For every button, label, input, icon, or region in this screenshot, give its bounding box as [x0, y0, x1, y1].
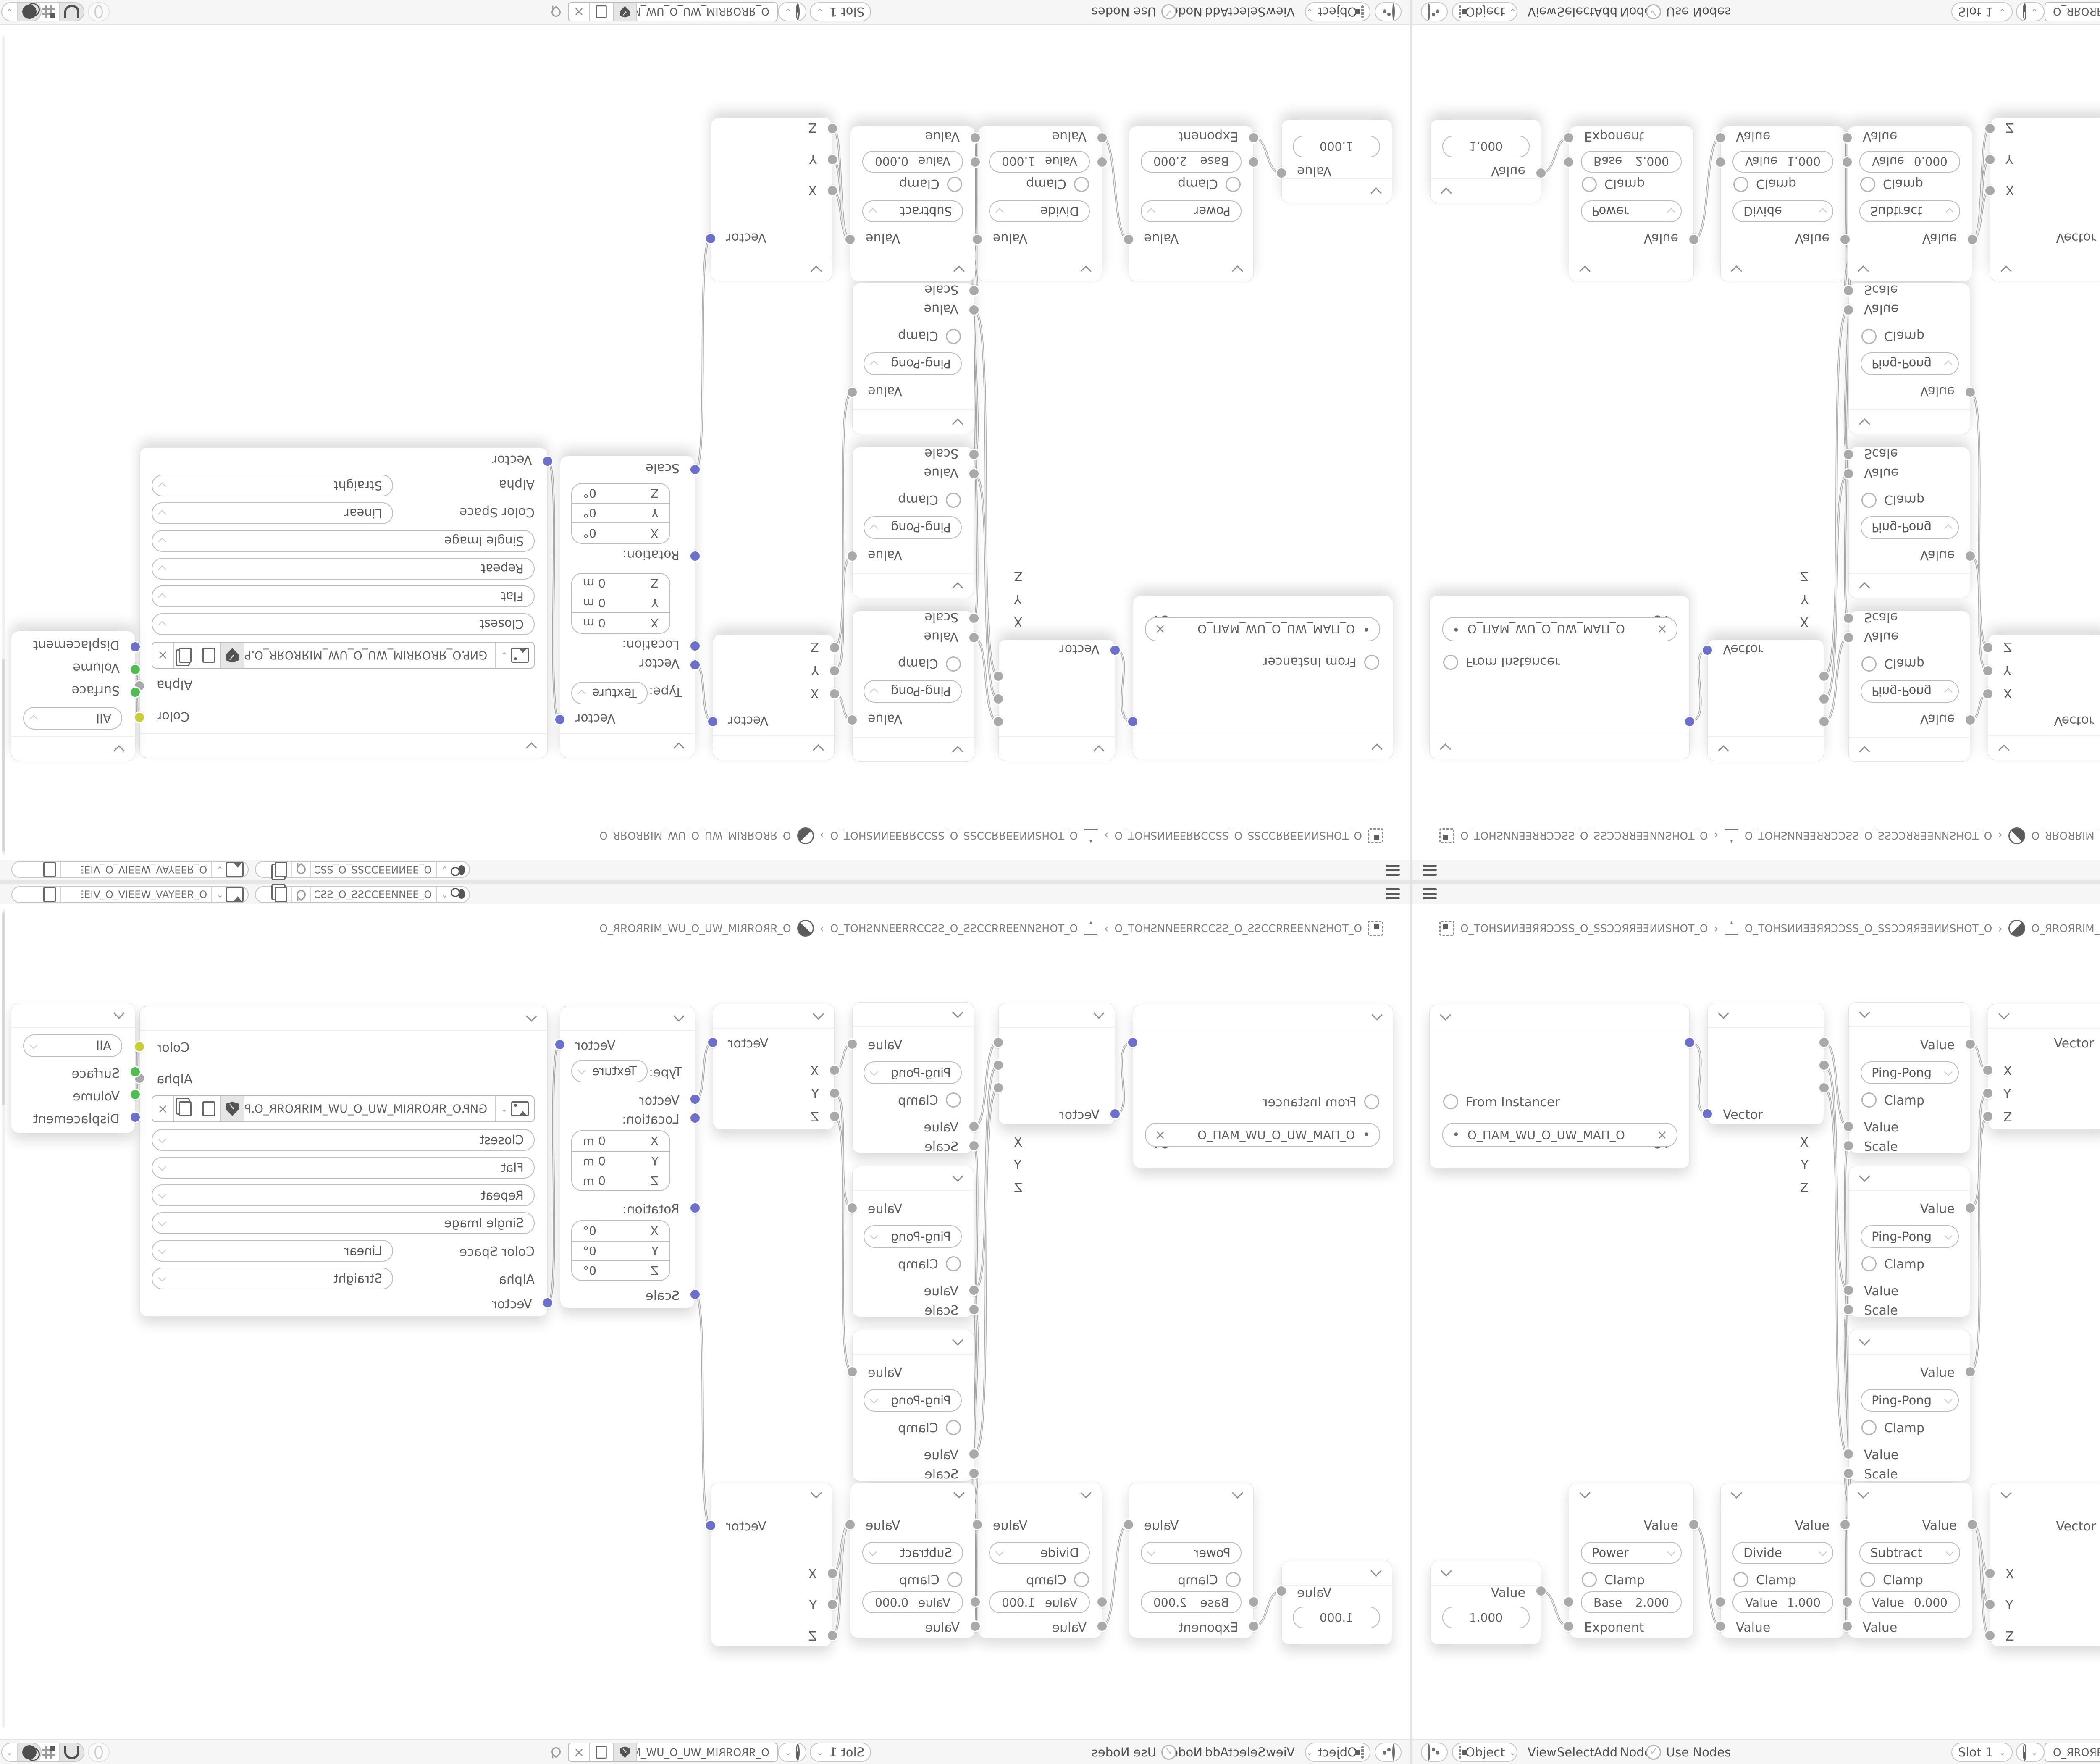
overlays-group[interactable]: ⌄ — [1, 1743, 42, 1762]
scene-icon[interactable]: ⌄ — [436, 862, 469, 877]
socket-pingpong3-value-in[interactable] — [969, 305, 979, 315]
node-header[interactable] — [1849, 737, 1970, 761]
collapse-icon[interactable] — [1093, 745, 1105, 756]
clamp-checkbox[interactable] — [1860, 177, 1875, 192]
socket-pingpong3-value-out[interactable] — [1966, 1367, 1975, 1376]
socket-combine-top-vector-out[interactable] — [708, 1038, 717, 1047]
from-instancer-checkbox[interactable] — [1443, 655, 1458, 670]
socket-separate-vector-in[interactable] — [1110, 646, 1120, 655]
socket-mapping-rotation-in[interactable] — [690, 551, 700, 561]
socket-divide-value1-in[interactable] — [1716, 1597, 1725, 1606]
scene-selector[interactable]: ⌄ O_ƎƎИИƎƎƆƆSS_O_SSƆƆƎƎИИ… — [255, 886, 470, 903]
socket-power-value-out[interactable] — [1124, 1520, 1133, 1529]
use-nodes-checkbox[interactable] — [1646, 1745, 1661, 1760]
clamp-checkbox[interactable] — [946, 493, 961, 508]
socket-subtract-value-out[interactable] — [1968, 1520, 1977, 1529]
node-header[interactable] — [713, 1004, 834, 1029]
overlay-icon[interactable] — [18, 3, 41, 21]
socket-subtract-value1-in[interactable] — [1843, 1597, 1852, 1606]
overlay-icon[interactable] — [18, 1743, 41, 1761]
collapse-icon[interactable] — [952, 418, 963, 430]
shader-mode-dropdown[interactable]: Object⌄ — [1305, 2, 1370, 21]
node-header[interactable] — [140, 1006, 547, 1031]
node-math-ping-pong-1[interactable]: Value Ping-Pong Clamp Value Scale — [852, 611, 974, 762]
location-x-field[interactable]: X0 m — [572, 613, 669, 633]
node-uv-map[interactable]: UV From Instancer • O_ПAM_WU_O_UW_MAП_O … — [1429, 596, 1690, 759]
node-value[interactable]: Value 1.000 — [1281, 1561, 1392, 1645]
collapse-icon[interactable] — [1998, 1008, 2010, 1020]
node-header[interactable] — [1849, 1003, 1970, 1027]
socket-uv-out[interactable] — [1128, 717, 1137, 726]
socket-pingpong1-value-in[interactable] — [969, 633, 979, 642]
socket-pingpong2-scale-in[interactable] — [1844, 1305, 1853, 1314]
value-field[interactable]: 1.000 — [1293, 1606, 1380, 1628]
collapse-icon[interactable] — [953, 265, 965, 277]
duplicate-icon[interactable] — [174, 643, 197, 668]
node-math-divide[interactable]: Value Divide Clamp Value1.000 Value — [1720, 1483, 1845, 1638]
node-editor-canvas[interactable]: O_TOHSИИƎƎЯЯƆƆSS_O_SSƆƆЯЯƎƎИИSHOT_O › O_… — [1412, 904, 2100, 1739]
collapse-icon[interactable] — [813, 744, 824, 756]
collapse-icon[interactable] — [673, 1011, 685, 1022]
canvas-scrollbar[interactable] — [2, 909, 5, 1728]
value-field[interactable]: Value0.000 — [1859, 151, 1960, 173]
socket-mapping-scale-in[interactable] — [690, 1290, 700, 1299]
socket-value-out[interactable] — [1536, 1586, 1546, 1596]
node-math-ping-pong-1[interactable]: Value Ping-Pong Clamp Value Scale — [1848, 611, 1970, 762]
output-target-dropdown[interactable]: All — [23, 1034, 122, 1057]
copy-icon[interactable] — [590, 1743, 614, 1761]
magnet-icon[interactable] — [60, 3, 84, 21]
node-editor-canvas[interactable]: O_TOHSИИƎƎЯЯƆƆSS_O_SSƆƆЯЯƎƎИИSHOT_O › O_… — [1412, 25, 2100, 860]
node-math-ping-pong-3[interactable]: Value Ping-Pong Clamp Value Scale — [1848, 283, 1970, 434]
copy-icon[interactable] — [270, 862, 291, 877]
view-layer-selector[interactable]: ⌄ O_ЯƎƎYAV_WƎƎIV_O_VIƎƎW_VAYƎƎЯ_O — [11, 861, 249, 878]
scene-name-field[interactable]: O_ƎƎИИƎƎƆƆSS_O_SSƆƆƎƎИИ… — [310, 862, 436, 877]
image-icon[interactable]: ⌄ — [496, 1096, 534, 1121]
collapse-icon[interactable] — [1440, 743, 1451, 755]
collapse-icon[interactable] — [952, 746, 963, 757]
socket-pingpong1-scale-in[interactable] — [1844, 1141, 1853, 1150]
node-header[interactable] — [853, 1166, 974, 1191]
operation-dropdown[interactable]: Ping-Pong — [1861, 680, 1959, 703]
socket-pingpong1-scale-in[interactable] — [1844, 614, 1853, 623]
node-header[interactable] — [1129, 1483, 1253, 1507]
node-header[interactable] — [1849, 409, 1970, 434]
socket-subtract-value2-in[interactable] — [971, 133, 980, 142]
socket-pingpong3-value-in[interactable] — [1844, 1449, 1853, 1459]
socket-mapping-vector-out[interactable] — [555, 1040, 564, 1049]
node-header[interactable] — [1708, 736, 1824, 761]
value-field[interactable]: Value1.000 — [989, 1591, 1090, 1613]
material-datablock-row[interactable]: O_ЯROЯRIM_WU_O_UW_MIЯROЯR_O × — [568, 1743, 778, 1762]
copy-icon[interactable] — [197, 1096, 221, 1121]
alpha-mode-dropdown[interactable]: Straight — [152, 475, 393, 496]
socket-pingpong3-scale-in[interactable] — [1844, 286, 1853, 295]
node-image-texture[interactable]: Color Alpha ⌄ GИP.O_ЯROЯRIM_WU_O_UW_MIЯR… — [139, 447, 548, 758]
collapse-icon[interactable] — [113, 745, 125, 756]
value-field[interactable]: Value0.000 — [862, 151, 963, 173]
overlays-group[interactable]: ⌄ — [1, 2, 42, 21]
socket-power-base-in[interactable] — [1564, 157, 1573, 167]
socket-combine-top-vector-out[interactable] — [708, 717, 717, 726]
node-header[interactable] — [853, 573, 974, 598]
material-icon-button[interactable]: ⌄ — [778, 2, 806, 21]
rotation-x-field[interactable]: X0° — [572, 523, 669, 543]
socket-pingpong2-scale-in[interactable] — [1844, 450, 1853, 459]
socket-pingpong1-scale-in[interactable] — [969, 614, 979, 623]
location-xyz-fields[interactable]: X0 m Y0 m Z0 m — [571, 573, 670, 634]
operation-dropdown[interactable]: Power — [1141, 1542, 1242, 1564]
socket-divide-value-out[interactable] — [1840, 235, 1850, 244]
node-math-divide[interactable]: Value Divide Clamp Value1.000 Value — [977, 1483, 1102, 1638]
node-combine-xyz-bottom[interactable]: Vector X Y Z — [711, 118, 832, 281]
clamp-checkbox[interactable] — [1733, 1572, 1748, 1587]
slot-dropdown[interactable]: Slot 1⌄ — [1951, 1743, 2013, 1762]
socket-combine-top-z-in[interactable] — [1983, 1112, 1992, 1121]
node-header[interactable] — [1849, 1166, 1970, 1191]
uv-map-name-field[interactable]: • O_ПAM_WU_O_UW_MAП_O × — [1145, 617, 1380, 641]
socket-pingpong2-value-in[interactable] — [1844, 469, 1853, 478]
socket-mapping-location-in[interactable] — [690, 1113, 700, 1123]
socket-pingpong2-scale-in[interactable] — [969, 1305, 979, 1314]
node-header[interactable] — [1848, 1483, 1972, 1507]
collapse-icon[interactable] — [953, 1487, 965, 1499]
hamburger-menu-icon[interactable] — [1423, 865, 1437, 876]
magnet-icon[interactable] — [60, 1743, 84, 1761]
mapping-type-dropdown[interactable]: Texture — [571, 1060, 648, 1082]
projection-dropdown[interactable]: Flat — [152, 1157, 535, 1179]
node-math-ping-pong-2[interactable]: Value Ping-Pong Clamp Value Scale — [1848, 1166, 1970, 1317]
socket-mapping-rotation-in[interactable] — [690, 1203, 700, 1213]
socket-pingpong3-scale-in[interactable] — [969, 1469, 979, 1478]
node-math-subtract[interactable]: Value Subtract Clamp Value0.000 Value — [1847, 126, 1972, 281]
clamp-checkbox[interactable] — [1861, 1092, 1877, 1108]
socket-combine-bottom-x-in[interactable] — [828, 186, 837, 195]
scene-name-field[interactable]: O_ƎƎИИƎƎƆƆSS_O_SSƆƆƎƎИИ… — [310, 887, 436, 902]
pin-icon[interactable] — [549, 1745, 562, 1758]
shader-mode-dropdown[interactable]: Object⌄ — [1452, 2, 1517, 21]
socket-pingpong2-value-out[interactable] — [848, 551, 857, 561]
collapse-icon[interactable] — [526, 742, 537, 753]
node-header[interactable] — [850, 1483, 975, 1507]
socket-separate-z-out[interactable] — [1819, 1083, 1829, 1092]
socket-texture-vector-in[interactable] — [543, 1298, 552, 1307]
node-editor-canvas[interactable]: O_TOHSИИƎƎЯЯƆƆSS_O_SSƆƆЯЯƎƎИИSHOT_O › O_… — [0, 25, 1410, 860]
clamp-checkbox[interactable] — [1861, 329, 1877, 344]
node-header[interactable] — [1990, 257, 2100, 281]
editor-type-button[interactable]: ⌄ — [1375, 1743, 1402, 1762]
socket-separate-x-out[interactable] — [994, 1038, 1003, 1047]
menu-view[interactable]: View — [1266, 1745, 1295, 1759]
slot-dropdown[interactable]: Slot 1⌄ — [810, 1743, 871, 1762]
clamp-checkbox[interactable] — [946, 1256, 961, 1271]
node-header[interactable] — [1129, 257, 1253, 281]
copy-icon[interactable] — [590, 3, 614, 21]
socket-divide-value1-in[interactable] — [1097, 157, 1107, 167]
socket-power-base-in[interactable] — [1249, 1597, 1258, 1606]
collapse-icon[interactable] — [1998, 744, 2010, 756]
pin-icon[interactable] — [291, 862, 310, 877]
copy-icon[interactable] — [39, 862, 60, 877]
pin-icon[interactable] — [291, 887, 310, 902]
socket-pingpong2-value-in[interactable] — [969, 469, 979, 478]
copy-icon[interactable] — [39, 887, 60, 902]
clamp-checkbox[interactable] — [946, 656, 961, 672]
socket-mapping-scale-in[interactable] — [690, 465, 700, 474]
socket-divide-value1-in[interactable] — [1097, 1597, 1107, 1606]
socket-divide-value1-in[interactable] — [1716, 157, 1725, 167]
base-field[interactable]: Base2.000 — [1141, 151, 1242, 173]
node-header[interactable] — [999, 1003, 1115, 1028]
rotation-z-field[interactable]: Z0° — [572, 484, 669, 504]
rotation-xyz-fields[interactable]: X0° Y0° Z0° — [571, 483, 670, 544]
socket-pingpong1-value-out[interactable] — [1966, 1039, 1975, 1049]
clamp-checkbox[interactable] — [947, 177, 962, 192]
node-combine-xyz-top[interactable]: Vector X Y Z — [1988, 634, 2100, 760]
from-instancer-checkbox[interactable] — [1443, 1094, 1458, 1109]
operation-dropdown[interactable]: Divide — [1732, 200, 1833, 222]
clamp-checkbox[interactable] — [1860, 1572, 1875, 1587]
use-nodes-checkbox[interactable] — [1161, 4, 1176, 19]
node-math-ping-pong-2[interactable]: Value Ping-Pong Clamp Value Scale — [1848, 447, 1970, 598]
collapse-icon[interactable] — [1579, 1487, 1591, 1499]
from-instancer-checkbox[interactable] — [1364, 655, 1379, 670]
socket-divide-value2-in[interactable] — [1716, 133, 1725, 142]
uv-map-name-field[interactable]: • O_ПAM_WU_O_UW_MAП_O × — [1145, 1123, 1380, 1147]
collapse-icon[interactable] — [952, 1171, 963, 1182]
socket-separate-y-out[interactable] — [1819, 1060, 1829, 1070]
collapse-icon[interactable] — [1731, 1487, 1742, 1499]
collapse-icon[interactable] — [1371, 743, 1383, 755]
socket-pingpong2-value-out[interactable] — [1966, 551, 1975, 561]
shader-mode-dropdown[interactable]: Object⌄ — [1305, 1743, 1370, 1762]
node-header[interactable] — [11, 1003, 135, 1028]
operation-dropdown[interactable]: Ping-Pong — [864, 516, 962, 539]
collapse-icon[interactable] — [1859, 1171, 1870, 1182]
node-math-subtract[interactable]: Value Subtract Clamp Value0.000 Value — [850, 1483, 975, 1638]
operation-dropdown[interactable]: Power — [1581, 1542, 1682, 1564]
socket-texture-color-out[interactable] — [135, 713, 144, 722]
operation-dropdown[interactable]: Ping-Pong — [864, 680, 962, 703]
view-layer-name-field[interactable]: O_ЯƎƎYAV_WƎƎIV_O_VIƎƎW_VAYƎƎЯ_O — [60, 862, 211, 877]
node-math-power[interactable]: Value Power Clamp Base2.000 Exponent — [1129, 1483, 1254, 1638]
collapse-icon[interactable] — [1859, 1334, 1870, 1346]
socket-power-exponent-in[interactable] — [1564, 133, 1573, 142]
collapse-icon[interactable] — [673, 742, 685, 753]
proportional-edit-button[interactable] — [88, 1743, 110, 1762]
shader-mode-dropdown[interactable]: Object⌄ — [1452, 1743, 1517, 1762]
node-separate-xyz[interactable]: X Y Z Vector — [1707, 1003, 1824, 1125]
socket-value-out[interactable] — [1536, 168, 1546, 178]
socket-combine-top-y-in[interactable] — [830, 666, 839, 675]
value-field[interactable]: Value1.000 — [1732, 1591, 1833, 1613]
rotation-y-field[interactable]: Y0° — [572, 504, 669, 523]
operation-dropdown[interactable]: Ping-Pong — [1861, 1225, 1959, 1248]
socket-combine-bottom-x-in[interactable] — [828, 1569, 837, 1578]
duplicate-icon[interactable] — [174, 1096, 197, 1121]
socket-output-volume-in[interactable] — [131, 665, 140, 674]
socket-pingpong3-scale-in[interactable] — [1844, 1469, 1853, 1478]
scene-icon[interactable]: ⌄ — [436, 887, 469, 902]
collapse-icon[interactable] — [1859, 1007, 1870, 1018]
node-math-power[interactable]: Value Power Clamp Base2.000 Exponent — [1569, 1483, 1694, 1638]
socket-subtract-value-out[interactable] — [845, 235, 855, 244]
collapse-icon[interactable] — [1859, 746, 1870, 757]
socket-separate-z-out[interactable] — [994, 1083, 1003, 1092]
clamp-checkbox[interactable] — [1733, 177, 1748, 192]
color-space-dropdown[interactable]: Linear — [152, 502, 393, 524]
shield-icon[interactable] — [221, 1096, 244, 1121]
node-value[interactable]: Value 1.000 — [1281, 119, 1392, 203]
proportional-edit-button[interactable] — [88, 2, 110, 21]
clamp-checkbox[interactable] — [1074, 1572, 1089, 1587]
collapse-icon[interactable] — [1440, 1009, 1451, 1021]
operation-dropdown[interactable]: Ping-Pong — [864, 1061, 962, 1084]
socket-separate-y-out[interactable] — [994, 694, 1003, 703]
editor-type-button[interactable]: ⌄ — [1421, 1743, 1448, 1762]
collapse-icon[interactable] — [1718, 1008, 1729, 1019]
collapse-icon[interactable] — [952, 1334, 963, 1346]
base-field[interactable]: Base2.000 — [1581, 151, 1682, 173]
node-header[interactable] — [1849, 573, 1970, 598]
socket-combine-top-y-in[interactable] — [1983, 666, 1992, 675]
node-editor-canvas[interactable]: O_TOHSИИƎƎЯЯƆƆSS_O_SSƆƆЯЯƎƎИИSHOT_O › O_… — [0, 904, 1410, 1739]
collapse-icon[interactable] — [1371, 1009, 1383, 1021]
node-material-output[interactable]: All Surface Volume Displacement — [11, 1003, 135, 1133]
socket-power-exponent-in[interactable] — [1249, 133, 1258, 142]
socket-combine-bottom-z-in[interactable] — [1985, 124, 1995, 133]
socket-texture-vector-in[interactable] — [543, 457, 552, 466]
socket-combine-bottom-y-in[interactable] — [828, 155, 837, 164]
material-icon-button[interactable]: ⌄ — [2016, 1743, 2045, 1762]
clamp-checkbox[interactable] — [1861, 1420, 1877, 1435]
material-icon-button[interactable]: ⌄ — [2016, 2, 2045, 21]
rotation-z-field[interactable]: Z0° — [572, 1260, 669, 1280]
operation-dropdown[interactable]: Ping-Pong — [1861, 1061, 1959, 1084]
collapse-icon[interactable] — [1080, 1487, 1092, 1499]
socket-pingpong1-value-out[interactable] — [848, 1039, 857, 1049]
node-math-ping-pong-2[interactable]: Value Ping-Pong Clamp Value Scale — [852, 447, 974, 598]
view-layer-name-field[interactable]: O_ЯƎƎYAV_WƎƎIV_O_VIƎƎW_VAYƎƎЯ_O — [60, 887, 211, 902]
collapse-icon[interactable] — [813, 1008, 824, 1020]
collapse-icon[interactable] — [1370, 187, 1382, 199]
material-datablock-row[interactable]: O_ЯROЯRIM_WU_O_UW_MIЯROЯR_O × — [568, 2, 778, 21]
extension-dropdown[interactable]: Repeat — [152, 1184, 535, 1206]
operation-dropdown[interactable]: Subtract — [1859, 1542, 1960, 1564]
operation-dropdown[interactable]: Divide — [989, 200, 1090, 222]
socket-divide-value-out[interactable] — [1840, 1520, 1850, 1529]
node-math-ping-pong-1[interactable]: Value Ping-Pong Clamp Value Scale — [852, 1002, 974, 1153]
node-header[interactable] — [850, 257, 975, 281]
socket-pingpong2-value-out[interactable] — [848, 1203, 857, 1213]
socket-separate-vector-in[interactable] — [1703, 646, 1712, 655]
socket-pingpong2-value-out[interactable] — [1966, 1203, 1975, 1213]
shield-icon[interactable] — [614, 3, 637, 21]
socket-pingpong1-value-in[interactable] — [1844, 1122, 1853, 1131]
slot-dropdown[interactable]: Slot 1⌄ — [810, 2, 871, 21]
menu-view[interactable]: View — [1266, 5, 1295, 19]
interpolation-dropdown[interactable]: Closest — [152, 1129, 535, 1151]
base-field[interactable]: Base2.000 — [1141, 1591, 1242, 1613]
socket-combine-bottom-z-in[interactable] — [828, 124, 837, 133]
collapse-icon[interactable] — [1859, 582, 1870, 593]
view-layer-icon[interactable]: ⌄ — [211, 887, 248, 902]
menu-select[interactable]: Select — [1228, 5, 1265, 19]
rotation-x-field[interactable]: X0° — [572, 1221, 669, 1241]
clamp-checkbox[interactable] — [1074, 177, 1089, 192]
location-z-field[interactable]: Z0 m — [572, 1171, 669, 1190]
socket-texture-color-out[interactable] — [135, 1042, 144, 1051]
mapping-type-dropdown[interactable]: Texture — [571, 682, 648, 704]
node-header[interactable] — [1849, 1330, 1970, 1354]
node-combine-xyz-bottom[interactable]: Vector X Y Z — [1990, 1483, 2100, 1646]
node-math-ping-pong-3[interactable]: Value Ping-Pong Clamp Value Scale — [1848, 1330, 1970, 1481]
node-mapping[interactable]: Vector Type: Texture Vector Location: X0… — [560, 456, 695, 758]
socket-separate-z-out[interactable] — [1819, 672, 1829, 681]
scene-selector[interactable]: ⌄ O_ƎƎИИƎƎƆƆSS_O_SSƆƆƎƎИИ… — [255, 861, 470, 878]
node-header[interactable] — [1569, 257, 1693, 281]
operation-dropdown[interactable]: Power — [1141, 200, 1242, 222]
socket-power-exponent-in[interactable] — [1249, 1622, 1258, 1631]
node-image-texture[interactable]: Color Alpha ⌄ GИP.O_ЯROЯRIM_WU_O_UW_MIЯR… — [139, 1006, 548, 1317]
menu-select[interactable]: Select — [1228, 1745, 1265, 1759]
close-icon[interactable]: × — [569, 3, 590, 21]
hamburger-menu-icon[interactable] — [1386, 865, 1400, 876]
menu-select[interactable]: Select — [1557, 5, 1594, 19]
source-dropdown[interactable]: Single Image — [152, 530, 535, 552]
collapse-icon[interactable] — [1718, 745, 1729, 756]
node-separate-xyz[interactable]: X Y Z Vector — [1707, 639, 1824, 761]
node-math-ping-pong-3[interactable]: Value Ping-Pong Clamp Value Scale — [852, 1330, 974, 1481]
node-header[interactable] — [1721, 1483, 1845, 1507]
clamp-checkbox[interactable] — [1582, 1572, 1597, 1587]
clamp-checkbox[interactable] — [1861, 493, 1877, 508]
socket-output-displacement-in[interactable] — [131, 1113, 140, 1122]
socket-mapping-vector-in[interactable] — [690, 1095, 700, 1104]
node-math-ping-pong-1[interactable]: Value Ping-Pong Clamp Value Scale — [1848, 1002, 1970, 1153]
node-header[interactable] — [1848, 257, 1972, 281]
uv-map-name-field[interactable]: • O_ПAM_WU_O_UW_MAП_O × — [1442, 617, 1677, 641]
rotation-xyz-fields[interactable]: X0° Y0° Z0° — [571, 1220, 670, 1281]
socket-output-volume-in[interactable] — [131, 1090, 140, 1099]
collapse-icon[interactable] — [1441, 1565, 1452, 1577]
node-uv-map[interactable]: UV From Instancer • O_ПAM_WU_O_UW_MAП_O … — [1133, 1005, 1393, 1168]
value-field[interactable]: Value1.000 — [989, 151, 1090, 173]
close-icon[interactable]: × — [1155, 622, 1165, 637]
node-header[interactable] — [853, 409, 974, 434]
socket-power-value-out[interactable] — [1689, 1520, 1698, 1529]
collapse-icon[interactable] — [1080, 265, 1092, 277]
operation-dropdown[interactable]: Power — [1581, 200, 1682, 222]
pin-icon[interactable] — [549, 5, 562, 18]
node-math-power[interactable]: Value Power Clamp Base2.000 Exponent — [1129, 126, 1254, 281]
close-icon[interactable]: × — [1155, 1128, 1165, 1142]
socket-subtract-value1-in[interactable] — [971, 157, 980, 167]
socket-pingpong1-scale-in[interactable] — [969, 1141, 979, 1150]
use-nodes-checkbox[interactable] — [1646, 4, 1661, 19]
node-separate-xyz[interactable]: X Y Z Vector — [998, 639, 1115, 761]
socket-value-out[interactable] — [1277, 168, 1286, 178]
socket-pingpong2-scale-in[interactable] — [969, 450, 979, 459]
rotation-y-field[interactable]: Y0° — [572, 1241, 669, 1260]
value-field[interactable]: 1.000 — [1442, 136, 1530, 157]
shield-icon[interactable] — [614, 1743, 637, 1761]
socket-combine-bottom-y-in[interactable] — [1985, 155, 1995, 164]
operation-dropdown[interactable]: Ping-Pong — [864, 1389, 962, 1412]
node-header[interactable] — [978, 1483, 1102, 1507]
socket-pingpong3-value-out[interactable] — [1966, 388, 1975, 397]
socket-combine-top-z-in[interactable] — [830, 1112, 839, 1121]
